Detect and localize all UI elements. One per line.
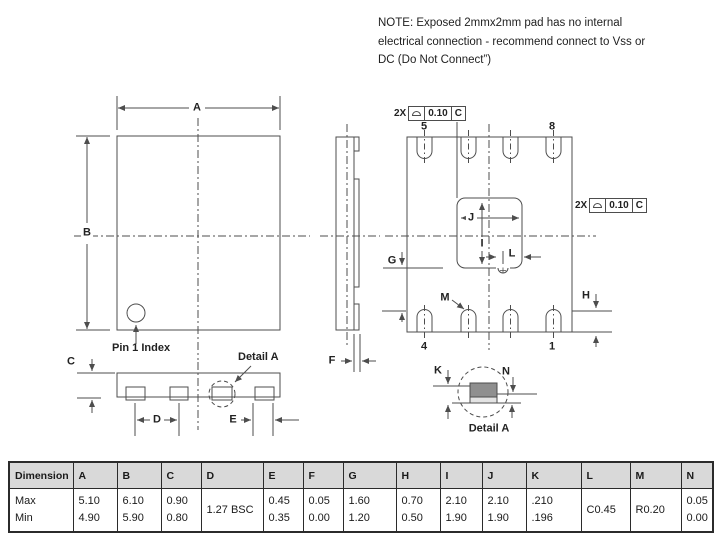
row-labels-cell: MaxMin — [9, 489, 73, 533]
gdt-tolerance: 0.10 — [605, 198, 632, 213]
pin-number-5: 5 — [421, 122, 427, 133]
note-line-1: NOTE: Exposed 2mmx2mm pad has no interna… — [378, 14, 713, 33]
col-header: D — [201, 462, 263, 489]
col-header: B — [117, 462, 161, 489]
profile-of-surface-icon — [408, 106, 425, 121]
detail-a-caption: Detail A — [469, 424, 510, 435]
col-header: F — [303, 462, 343, 489]
detail-pad-protrusion — [470, 397, 497, 403]
col-header: E — [263, 462, 303, 489]
dim-label-m: M — [440, 293, 449, 304]
dim-label-j: J — [466, 213, 476, 224]
col-header: H — [396, 462, 440, 489]
dim-label-b: B — [81, 228, 93, 239]
bottom-view — [382, 122, 612, 350]
cell-a: 5.104.90 — [73, 489, 117, 533]
dim-label-e: E — [229, 415, 236, 426]
cell-k: .210.196 — [526, 489, 581, 533]
cell-m: R0.20 — [630, 489, 681, 533]
dim-label-l: L — [509, 249, 516, 260]
edge-view — [320, 124, 380, 372]
col-header: A — [73, 462, 117, 489]
gdt-datum: C — [632, 198, 647, 213]
detail-a-circle — [209, 381, 235, 407]
package-drawing-page: NOTE: Exposed 2mmx2mm pad has no interna… — [0, 0, 722, 535]
pin-number-8: 8 — [549, 122, 555, 133]
col-header: J — [482, 462, 526, 489]
note-line-3: DC (Do Not Connect”) — [378, 51, 713, 70]
pin-number-1: 1 — [549, 342, 555, 353]
col-header: C — [161, 462, 201, 489]
dim-label-k: K — [434, 366, 442, 377]
cell-i: 2.101.90 — [440, 489, 482, 533]
dim-label-n: N — [502, 367, 510, 378]
col-header: I — [440, 462, 482, 489]
gdt-datum: C — [451, 106, 466, 121]
side-view — [77, 359, 299, 436]
col-header: L — [581, 462, 630, 489]
detail-a-pointer-label: Detail A — [238, 352, 279, 363]
cell-l: C0.45 — [581, 489, 630, 533]
note-block: NOTE: Exposed 2mmx2mm pad has no interna… — [378, 14, 713, 70]
pin1-index-marker — [127, 304, 145, 322]
dim-label-h: H — [582, 291, 590, 302]
cell-j: 2.101.90 — [482, 489, 526, 533]
top-view — [74, 96, 310, 360]
cell-n: 0.050.00 — [681, 489, 713, 533]
dim-label-c: C — [67, 357, 75, 368]
cell-c: 0.900.80 — [161, 489, 201, 533]
cell-f: 0.050.00 — [303, 489, 343, 533]
detail-a-view — [433, 367, 537, 419]
dim-label-d: D — [151, 415, 163, 426]
detail-pad-body — [470, 383, 497, 397]
gdt-callout-top: 2X 0.10 C — [394, 106, 466, 121]
profile-of-surface-icon — [589, 198, 606, 213]
table-data-row: MaxMin 5.104.90 6.105.90 0.900.80 1.27 B… — [9, 489, 713, 533]
cell-h: 0.700.50 — [396, 489, 440, 533]
gdt-callout-right: 2X 0.10 C — [575, 198, 647, 213]
dim-label-i: I — [478, 239, 485, 250]
gdt-qty: 2X — [394, 106, 409, 121]
pin-number-4: 4 — [421, 342, 427, 353]
col-header: K — [526, 462, 581, 489]
cell-d: 1.27 BSC — [201, 489, 263, 533]
col-header: N — [681, 462, 713, 489]
dim-label-f: F — [329, 356, 336, 367]
cell-e: 0.450.35 — [263, 489, 303, 533]
dimension-table: Dimension A B C D E F G H I J K L M N Ma… — [8, 461, 714, 533]
col-header: G — [343, 462, 396, 489]
cell-b: 6.105.90 — [117, 489, 161, 533]
col-header-dimension: Dimension — [9, 462, 73, 489]
note-line-2: electrical connection - recommend connec… — [378, 33, 713, 52]
dim-label-a: A — [191, 103, 203, 114]
cell-g: 1.601.20 — [343, 489, 396, 533]
gdt-tolerance: 0.10 — [424, 106, 451, 121]
table-header-row: Dimension A B C D E F G H I J K L M N — [9, 462, 713, 489]
gdt-qty: 2X — [575, 198, 590, 213]
dim-label-g: G — [388, 256, 397, 267]
pin1-index-label: Pin 1 Index — [112, 343, 170, 354]
col-header: M — [630, 462, 681, 489]
